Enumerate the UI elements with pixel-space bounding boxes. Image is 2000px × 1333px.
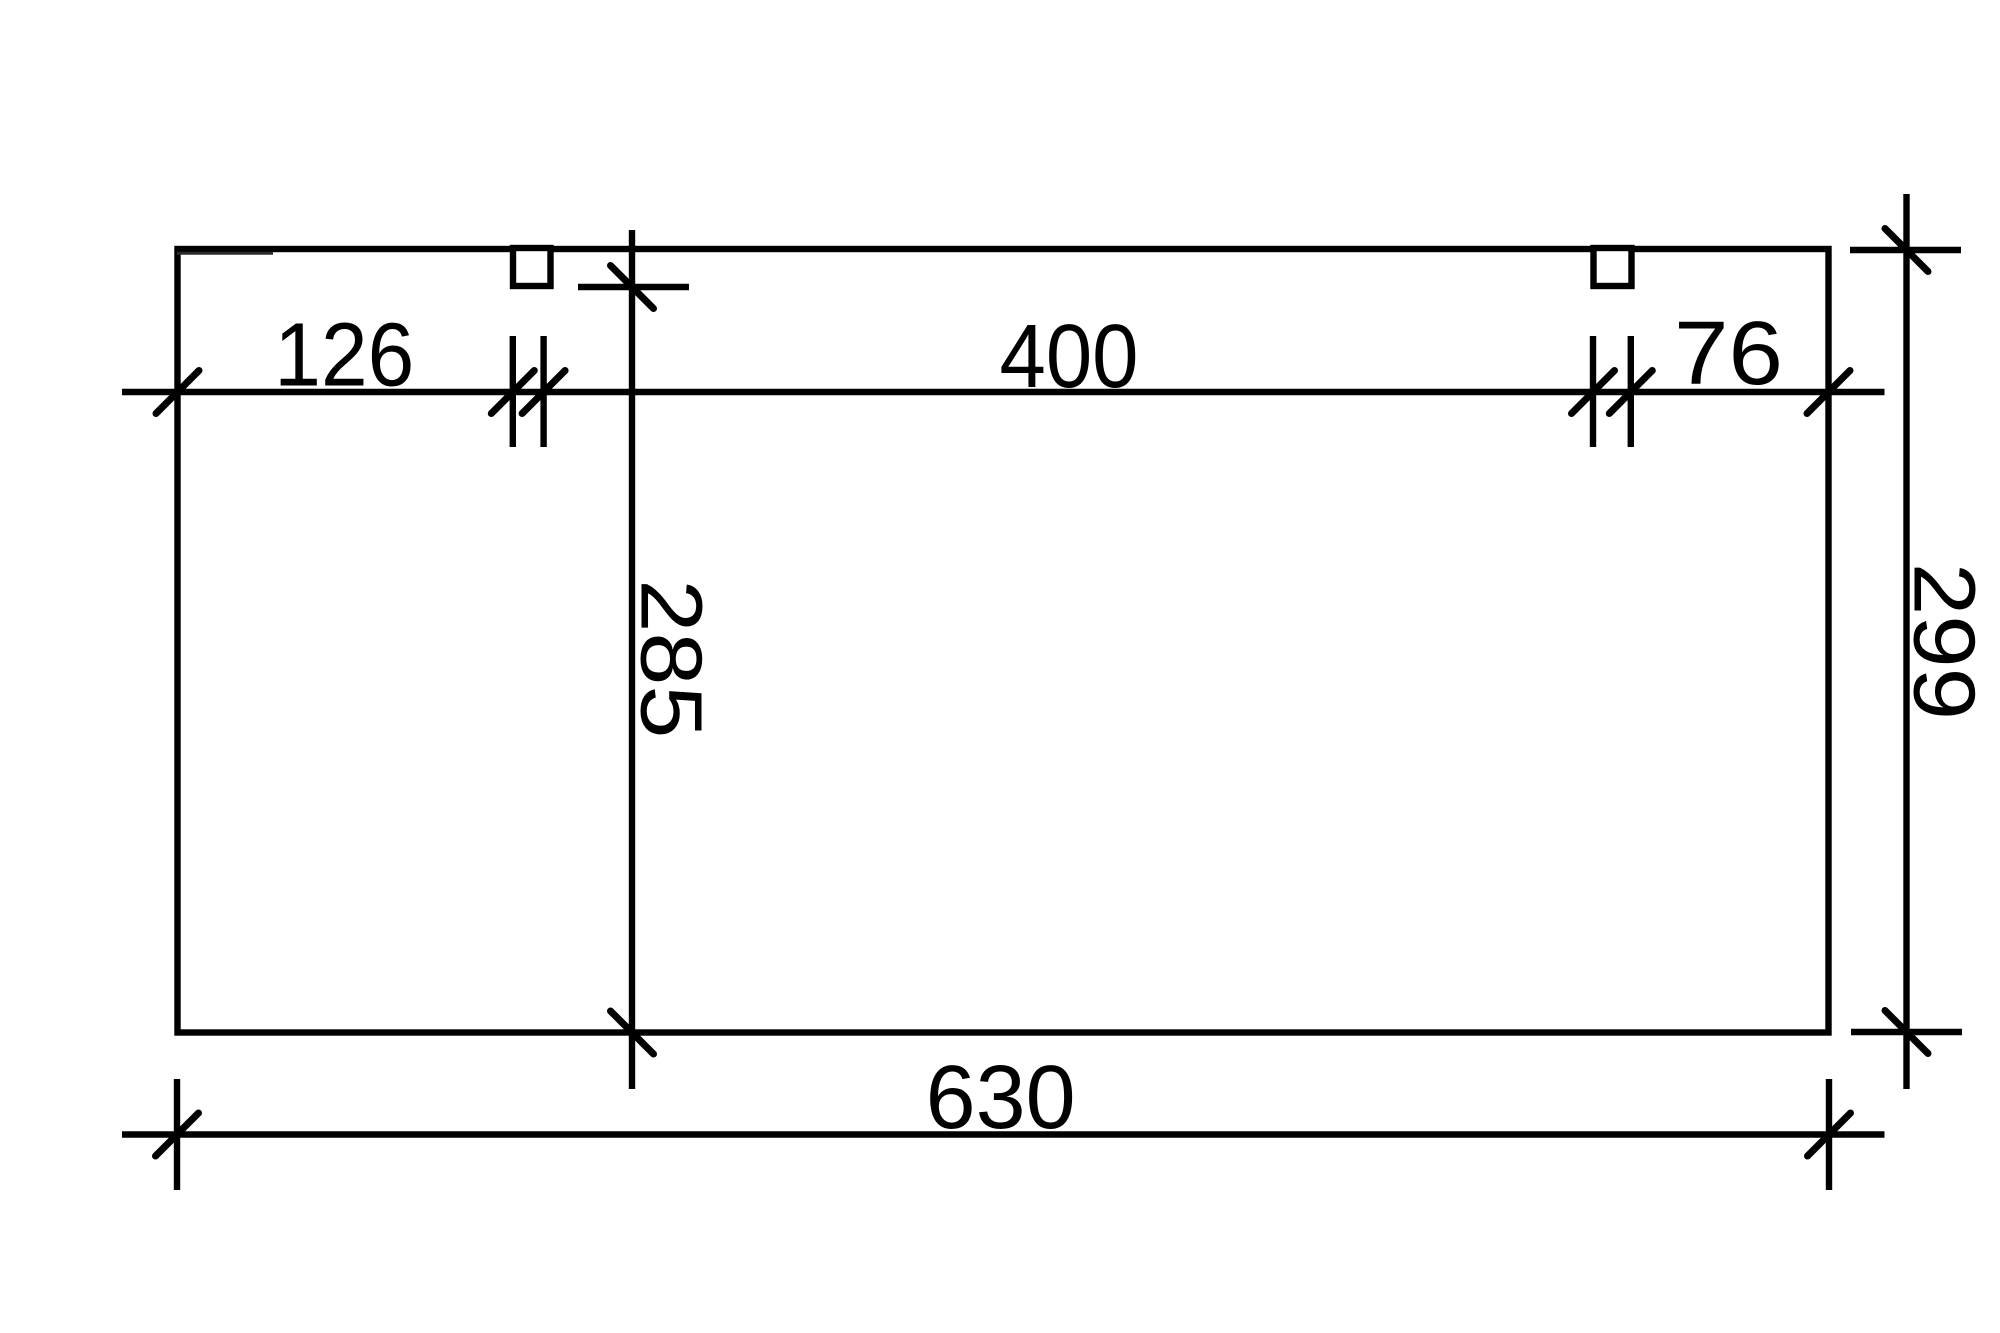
svg-text:76: 76 [1674, 304, 1783, 404]
svg-text:630: 630 [926, 1048, 1076, 1148]
svg-text:400: 400 [1000, 307, 1139, 407]
svg-text:299: 299 [1896, 563, 1993, 720]
svg-text:285: 285 [623, 579, 720, 738]
svg-text:126: 126 [274, 306, 414, 406]
